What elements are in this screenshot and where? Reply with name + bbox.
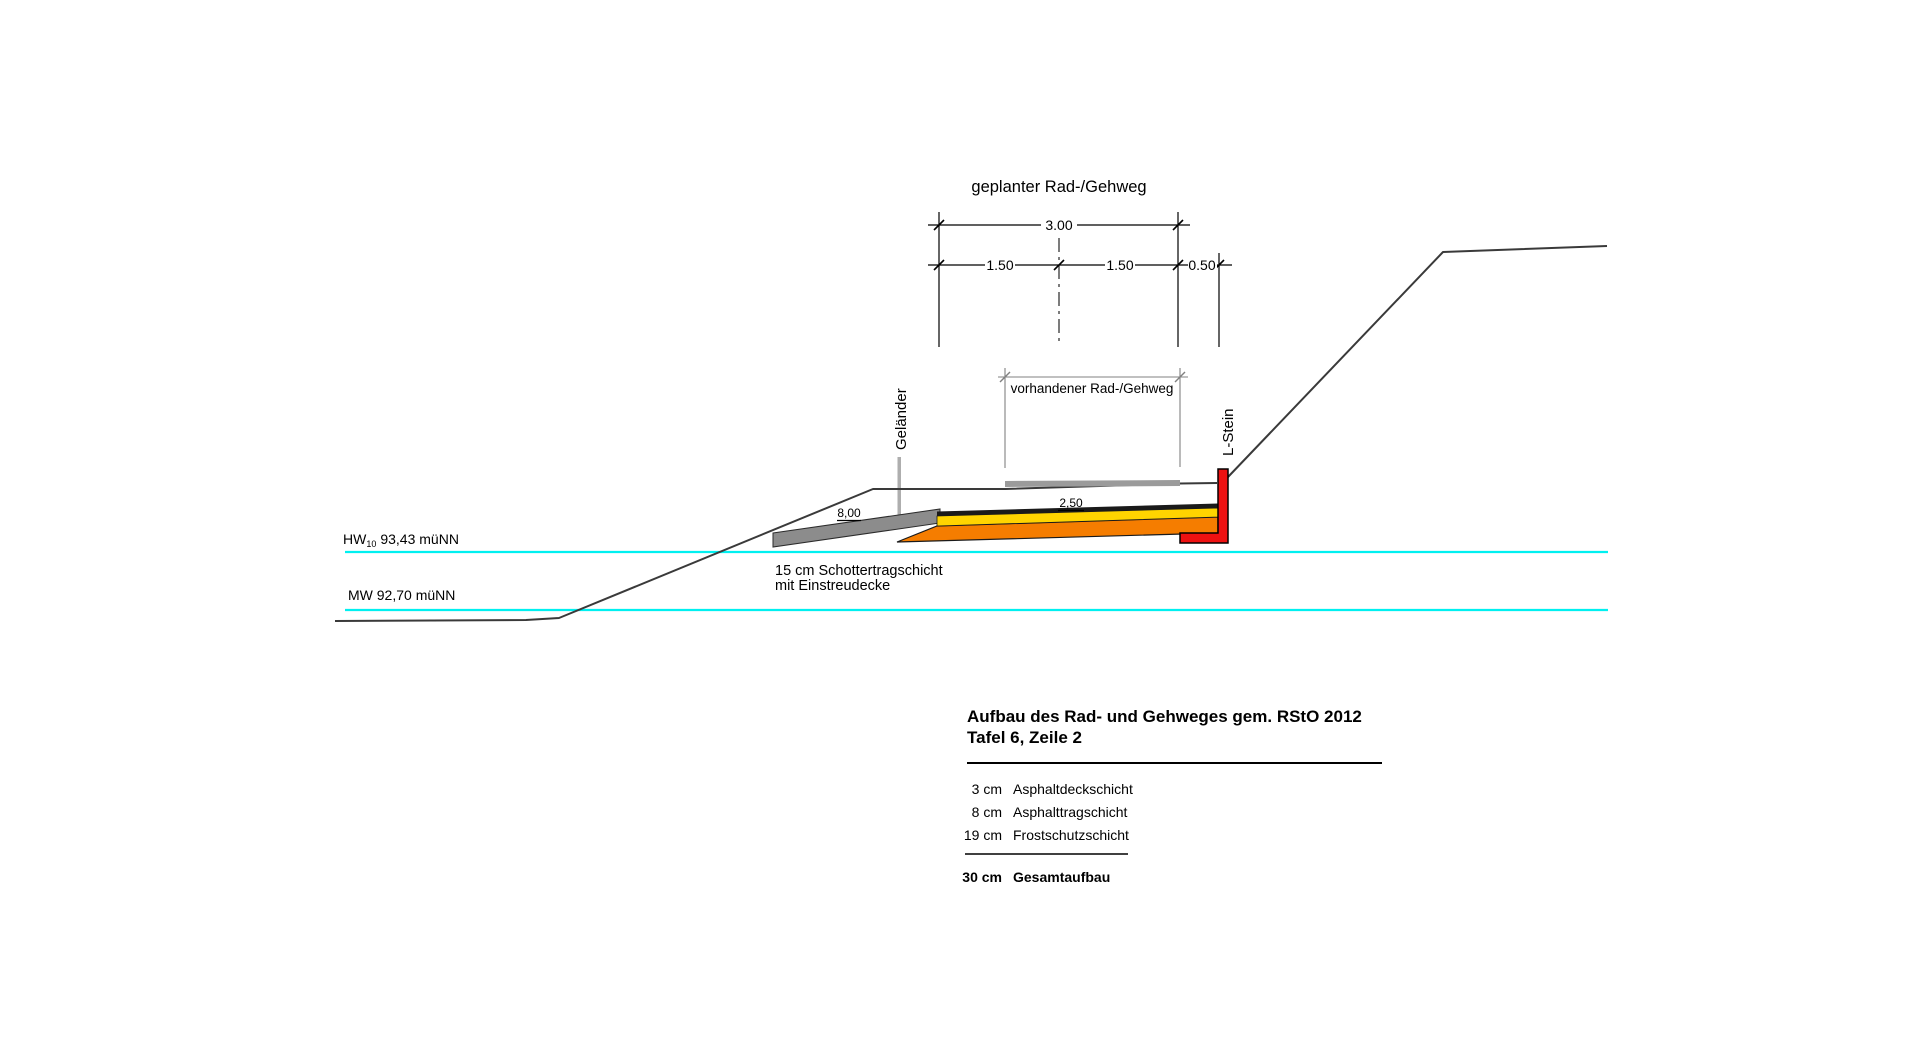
ramp-slope-label: 8,00 — [837, 506, 861, 520]
existing-path-dimension: vorhandener Rad-/Gehweg — [998, 368, 1188, 468]
row-layer: Asphaltdeckschicht — [1013, 781, 1133, 797]
gravel-note-line1: 15 cm Schottertragschicht — [775, 563, 943, 579]
row-layer: Frostschutzschicht — [1013, 827, 1129, 843]
gravel-note: 15 cm Schottertragschicht mit Einstreude… — [775, 563, 943, 594]
mean-water-label: MW 92,70 müNN — [348, 587, 455, 603]
existing-path-label: vorhandener Rad-/Gehweg — [1011, 381, 1174, 396]
cross-section-sheet: HW1093,43 müNN MW 92,70 müNN 8,00 2,50 1… — [0, 0, 1911, 1063]
cross-section-drawing: HW1093,43 müNN MW 92,70 müNN 8,00 2,50 1… — [0, 0, 1911, 1063]
dimension-ticks — [934, 220, 1224, 270]
railing-label: Geländer — [893, 388, 910, 450]
gravel-note-line2: mit Einstreudecke — [775, 578, 890, 594]
existing-path-surface — [1005, 480, 1180, 487]
hw-subscript: 10 — [366, 539, 376, 549]
dim-total-label: 3.00 — [1045, 217, 1072, 233]
row-layer: Asphalttragschicht — [1013, 804, 1128, 820]
table-rows: 3 cm Asphaltdeckschicht 8 cm Asphalttrag… — [964, 781, 1133, 843]
total-layer: Gesamtaufbau — [1013, 869, 1110, 885]
row-thickness: 19 cm — [964, 827, 1002, 843]
total-thickness: 30 cm — [962, 869, 1002, 885]
row-thickness: 8 cm — [972, 804, 1002, 820]
dim-lane-left-label: 1.50 — [986, 257, 1013, 273]
drawing-title: geplanter Rad-/Gehweg — [971, 178, 1146, 196]
hw-name: HW — [343, 531, 367, 547]
path-slope-label: 2,50 — [1059, 496, 1083, 510]
table-title-line2: Tafel 6, Zeile 2 — [967, 728, 1082, 747]
terrain — [335, 246, 1607, 621]
hw-value: 93,43 müNN — [380, 531, 459, 547]
dim-edge-label: 0.50 — [1188, 257, 1215, 273]
terrain-line-right — [1228, 246, 1607, 477]
dim-lane-right-label: 1.50 — [1106, 257, 1133, 273]
l-stone-label: L-Stein — [1220, 408, 1237, 456]
dimension-chain — [928, 212, 1232, 347]
high-water-label: HW1093,43 müNN — [343, 531, 459, 549]
table-title-line1: Aufbau des Rad- und Gehweges gem. RStO 2… — [967, 707, 1362, 726]
row-thickness: 3 cm — [972, 781, 1002, 797]
water-levels: HW1093,43 müNN MW 92,70 müNN — [343, 531, 1608, 610]
buildup-table: Aufbau des Rad- und Gehweges gem. RStO 2… — [962, 707, 1382, 885]
